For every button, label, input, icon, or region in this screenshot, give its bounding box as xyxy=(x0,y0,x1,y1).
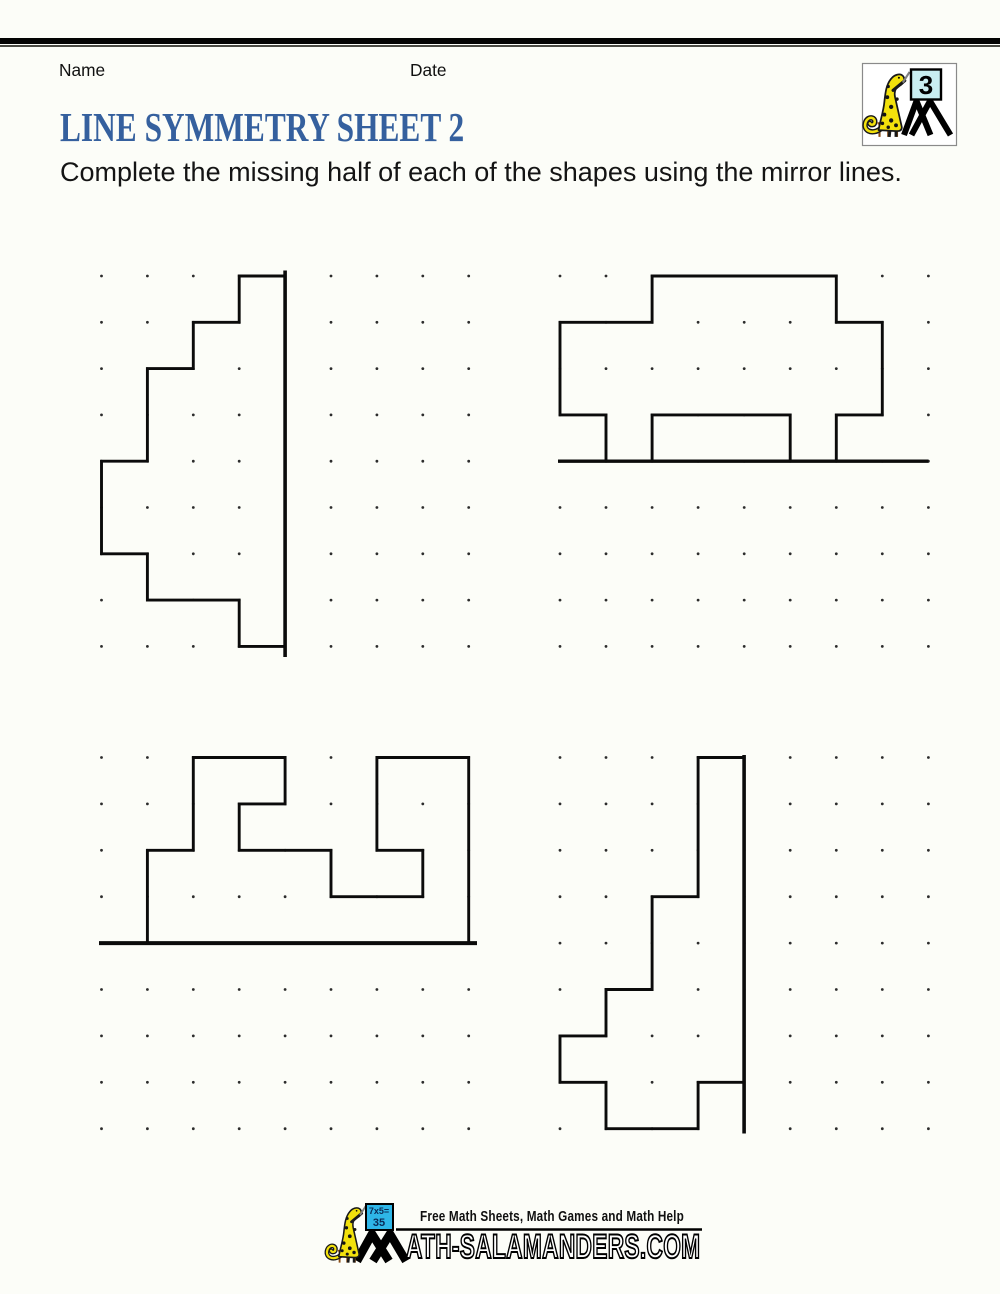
svg-text:35: 35 xyxy=(373,1217,385,1229)
svg-text:3: 3 xyxy=(919,70,933,100)
svg-text:7x5=: 7x5= xyxy=(369,1206,389,1216)
